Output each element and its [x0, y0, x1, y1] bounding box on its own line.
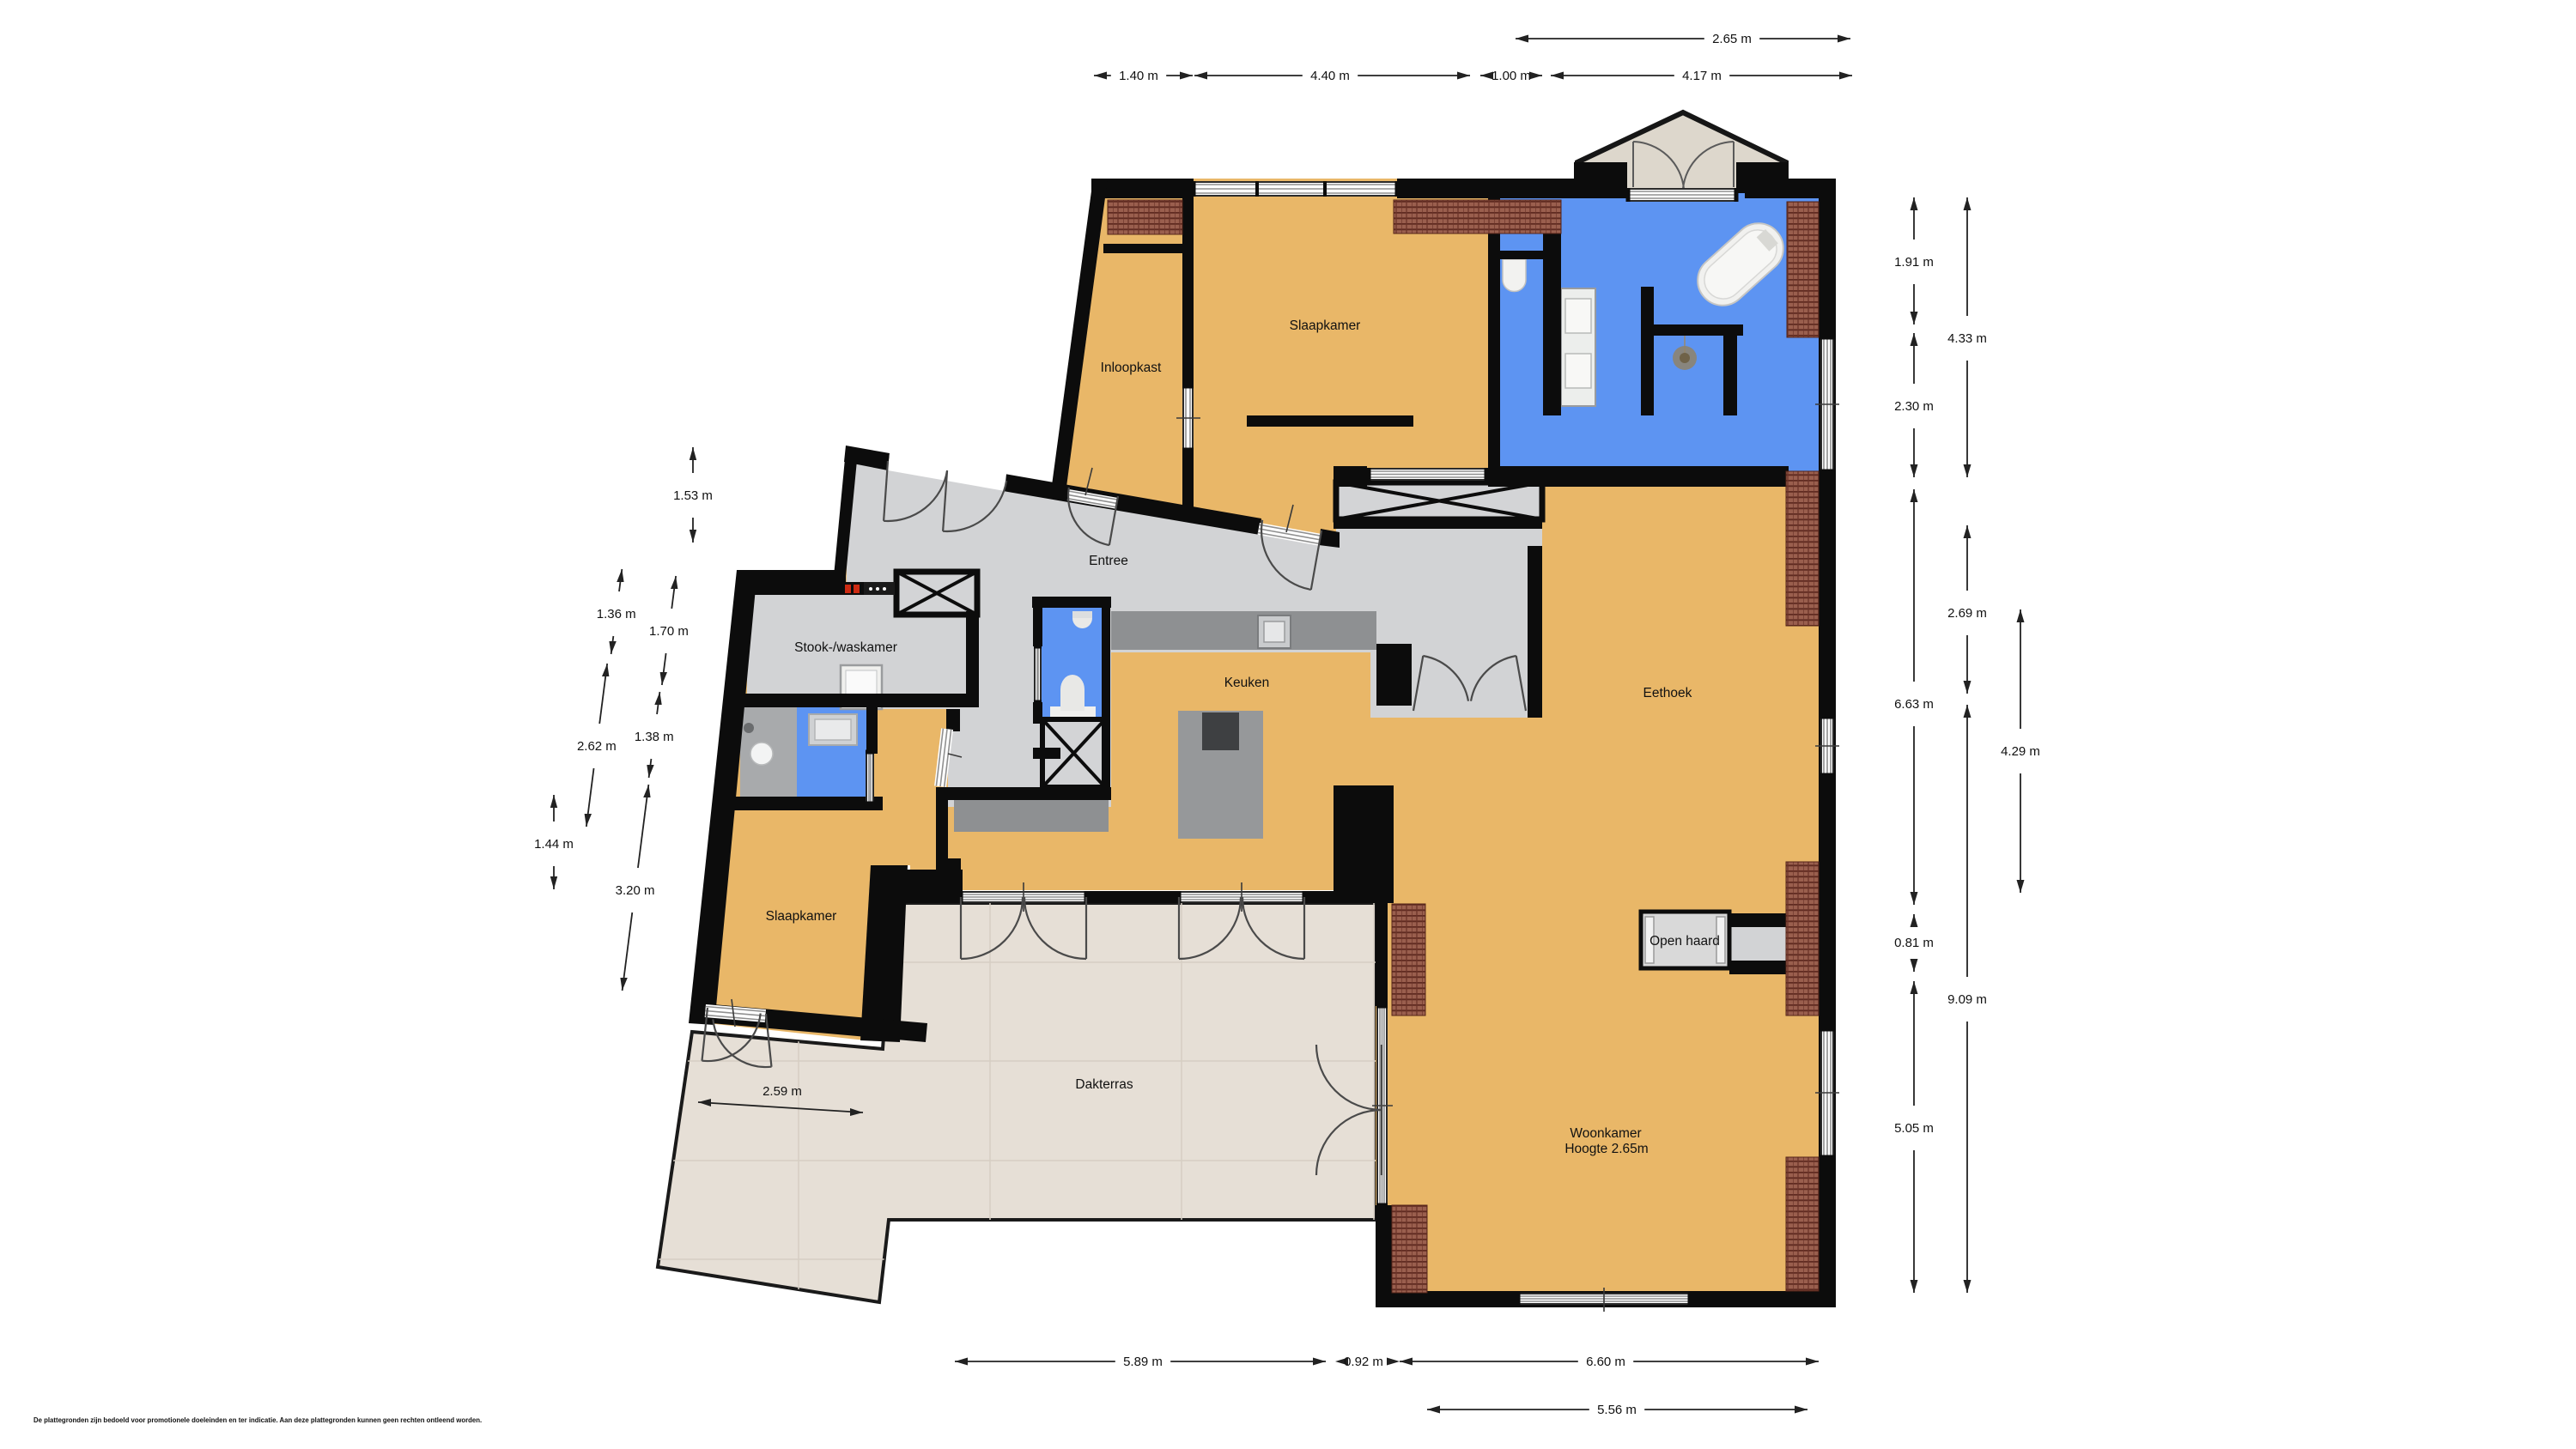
svg-text:Hoogte 2.65m: Hoogte 2.65m [1564, 1142, 1648, 1156]
svg-text:2.30 m: 2.30 m [1894, 399, 1934, 414]
svg-text:4.17 m: 4.17 m [1682, 69, 1722, 83]
svg-text:4.33 m: 4.33 m [1947, 331, 1987, 346]
svg-text:Stook-/waskamer: Stook-/waskamer [794, 640, 897, 655]
svg-text:1.00 m: 1.00 m [1492, 69, 1531, 83]
svg-text:5.05 m: 5.05 m [1894, 1121, 1934, 1136]
svg-text:4.40 m: 4.40 m [1310, 69, 1350, 83]
svg-text:1.91 m: 1.91 m [1894, 255, 1934, 270]
svg-text:1.40 m: 1.40 m [1119, 69, 1158, 83]
svg-text:1.36 m: 1.36 m [597, 607, 636, 621]
svg-text:1.53 m: 1.53 m [673, 488, 713, 503]
svg-text:9.09 m: 9.09 m [1947, 992, 1987, 1007]
svg-text:0.81 m: 0.81 m [1894, 936, 1934, 950]
svg-text:Open haard: Open haard [1649, 934, 1720, 949]
svg-text:5.56 m: 5.56 m [1597, 1403, 1637, 1417]
svg-text:6.63 m: 6.63 m [1894, 697, 1934, 712]
svg-text:Dakterras: Dakterras [1075, 1077, 1133, 1092]
svg-text:Slaapkamer: Slaapkamer [1290, 318, 1361, 333]
svg-text:2.69 m: 2.69 m [1947, 606, 1987, 621]
svg-text:2.59 m: 2.59 m [762, 1084, 802, 1099]
svg-text:Inloopkast: Inloopkast [1101, 361, 1162, 375]
svg-text:2.65 m: 2.65 m [1712, 32, 1752, 46]
svg-text:Entree: Entree [1089, 554, 1128, 568]
svg-text:6.60 m: 6.60 m [1586, 1355, 1625, 1369]
svg-text:1.70 m: 1.70 m [649, 624, 689, 639]
svg-text:Eethoek: Eethoek [1643, 686, 1692, 700]
svg-text:5.89 m: 5.89 m [1123, 1355, 1163, 1369]
svg-text:4.29 m: 4.29 m [2001, 744, 2040, 759]
svg-text:Keuken: Keuken [1224, 676, 1270, 690]
svg-text:De plattegronden zijn bedoeld: De plattegronden zijn bedoeld voor promo… [33, 1416, 482, 1424]
svg-text:2.62 m: 2.62 m [577, 739, 617, 754]
svg-text:1.44 m: 1.44 m [534, 837, 574, 852]
svg-text:0.92 m: 0.92 m [1344, 1355, 1383, 1369]
svg-text:Slaapkamer: Slaapkamer [766, 909, 837, 924]
svg-text:1.38 m: 1.38 m [635, 730, 674, 744]
svg-text:Woonkamer: Woonkamer [1570, 1126, 1641, 1141]
svg-text:3.20 m: 3.20 m [616, 883, 655, 898]
